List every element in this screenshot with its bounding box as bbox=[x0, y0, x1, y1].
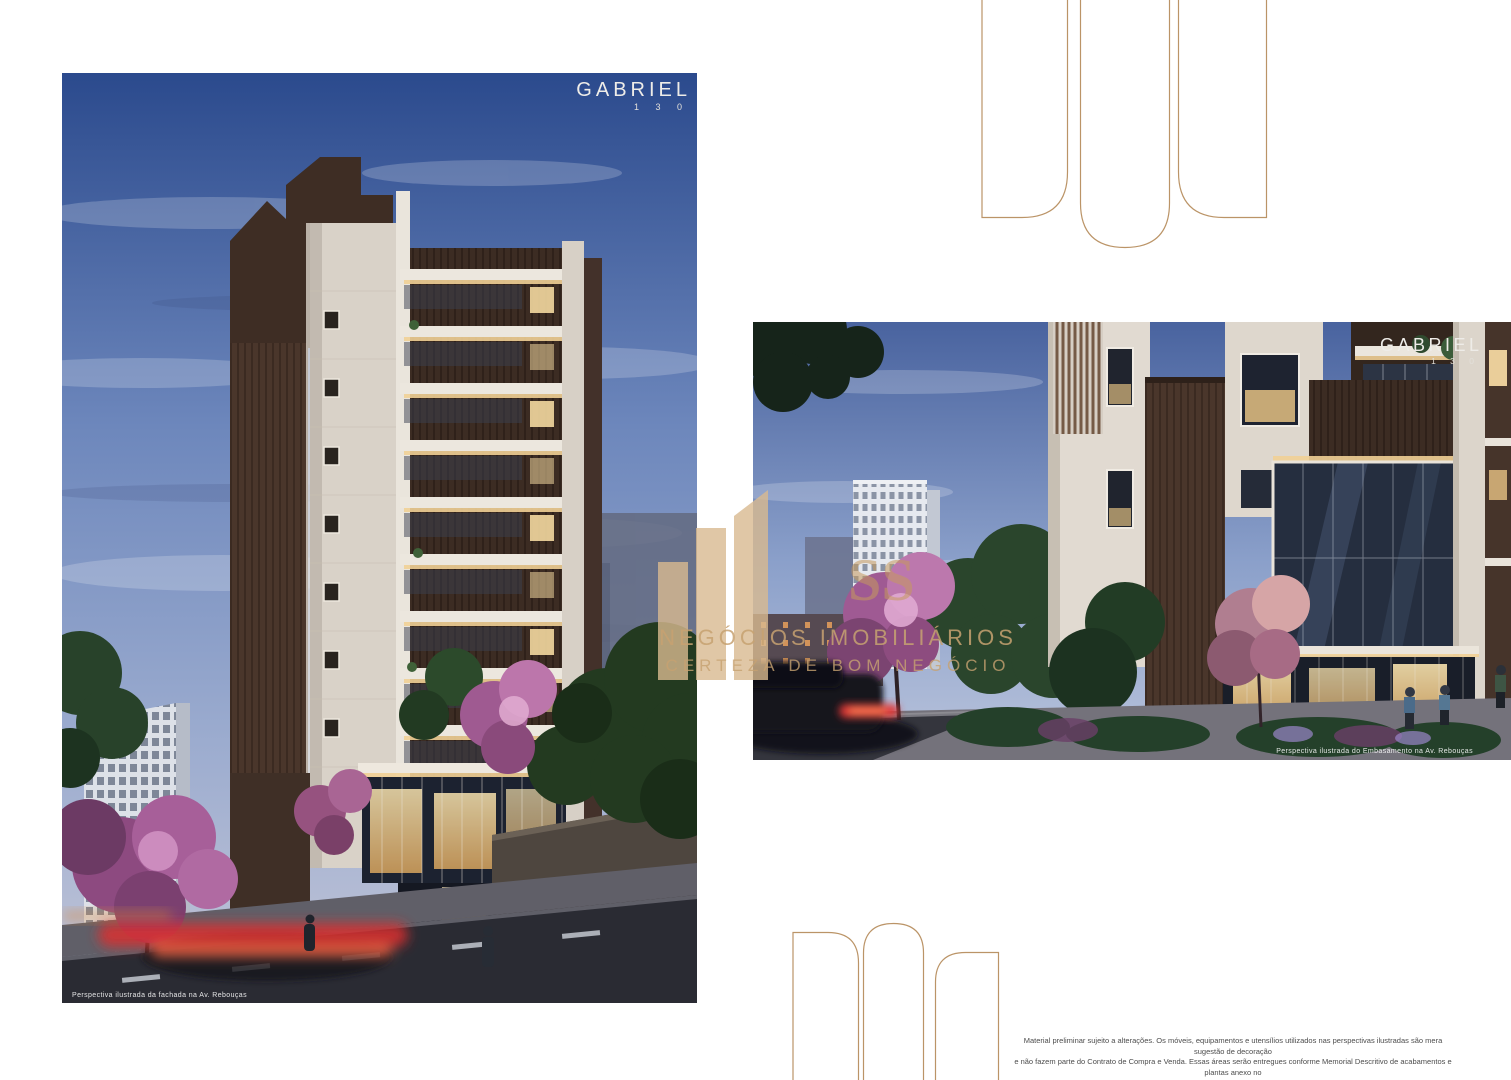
facade-caption: Perspectiva ilustrada da fachada na Av. … bbox=[72, 992, 247, 999]
facade-illustration bbox=[62, 73, 697, 1003]
embasamento-illustration bbox=[753, 322, 1511, 760]
arch-shape bbox=[793, 933, 859, 1080]
disclaimer-line: Material preliminar sujeito a alterações… bbox=[1008, 1036, 1458, 1057]
arch-shape bbox=[864, 924, 924, 1080]
arch-shape bbox=[936, 953, 999, 1080]
arch-shape bbox=[1081, 0, 1170, 248]
brand-number: 1 3 0 bbox=[1380, 357, 1480, 366]
disclaimer: Material preliminar sujeito a alterações… bbox=[1008, 1036, 1458, 1080]
embasamento-caption: Perspectiva ilustrada do Embasamento na … bbox=[1276, 748, 1473, 755]
brand-name: GABRIEL bbox=[576, 80, 691, 100]
brand-name: GABRIEL bbox=[1380, 336, 1483, 354]
arch-shape bbox=[982, 0, 1068, 218]
decorative-arches-bottom bbox=[785, 920, 1015, 1080]
brochure-page: GABRIEL 1 3 0 Perspectiva ilustrada da f… bbox=[0, 0, 1511, 1080]
render-embasamento: GABRIEL 1 3 0 Perspectiva ilustrada do E… bbox=[753, 322, 1511, 760]
disclaimer-line: e não fazem parte do Contrato de Compra … bbox=[1008, 1057, 1458, 1078]
gabriel-logo: GABRIEL 1 3 0 bbox=[1380, 336, 1479, 366]
brand-number: 1 3 0 bbox=[576, 103, 689, 112]
decorative-arches-top bbox=[975, 0, 1275, 252]
arch-shape bbox=[1179, 0, 1267, 218]
gabriel-logo: GABRIEL 1 3 0 bbox=[576, 80, 687, 112]
render-facade: GABRIEL 1 3 0 Perspectiva ilustrada da f… bbox=[62, 73, 697, 1003]
